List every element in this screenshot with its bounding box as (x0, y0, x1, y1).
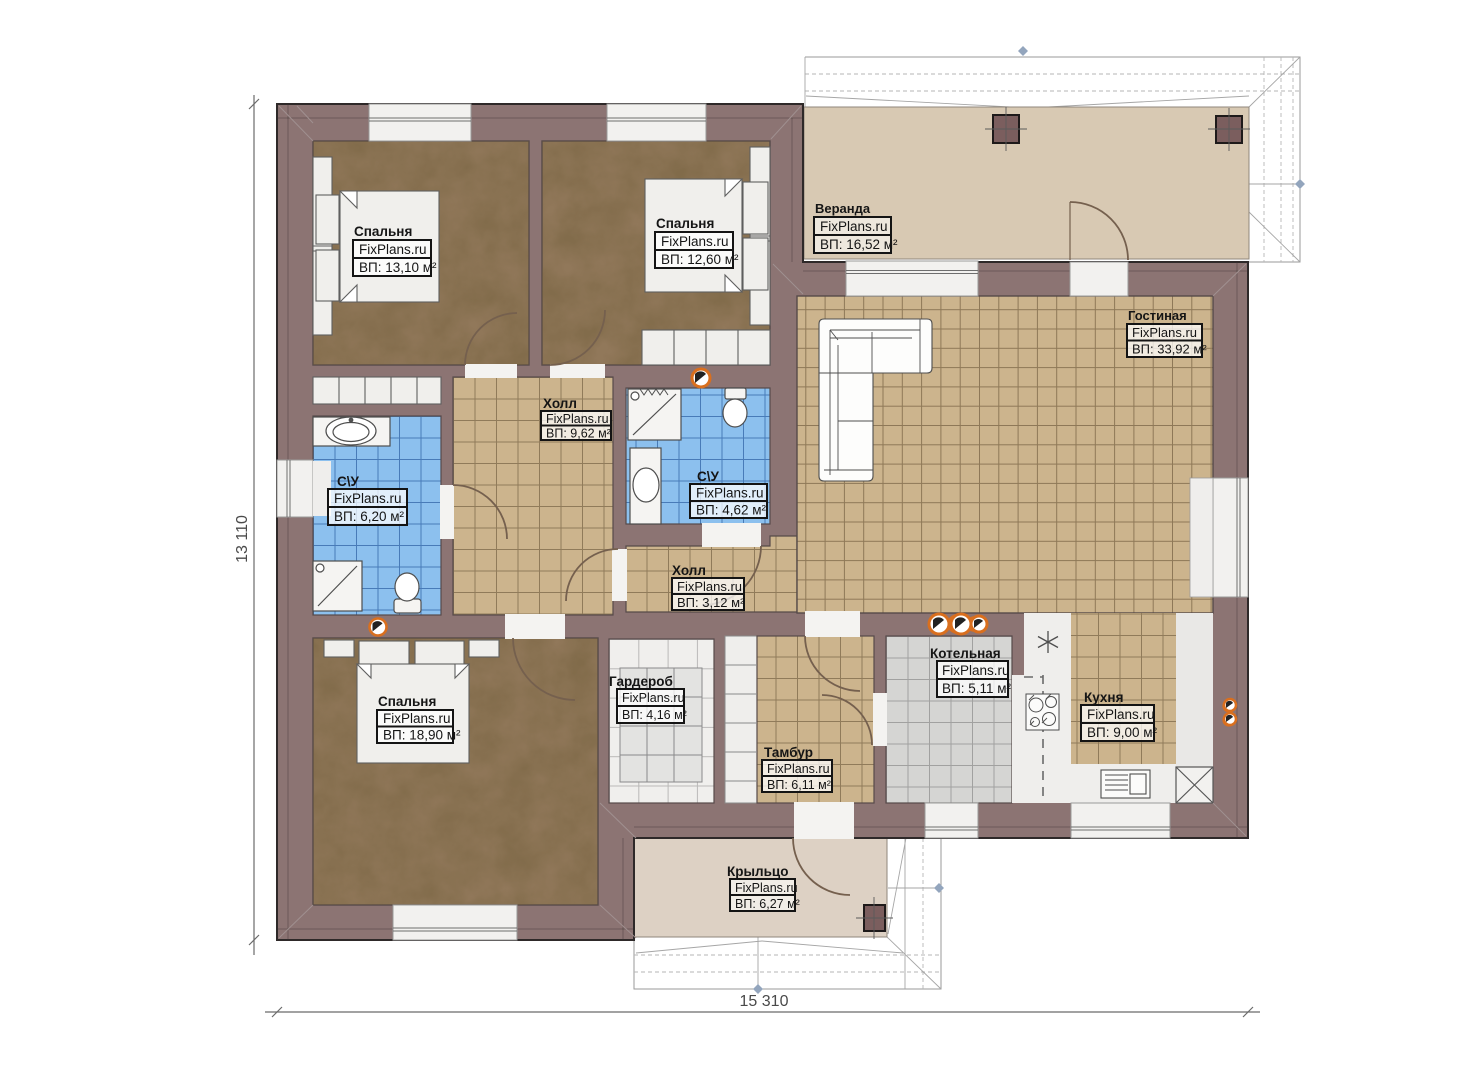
svg-text:ВП: 5,11 м²: ВП: 5,11 м² (942, 681, 1012, 696)
svg-text:Тамбур: Тамбур (764, 745, 813, 760)
svg-text:Холл: Холл (672, 563, 706, 578)
svg-text:ВП: 6,11 м²: ВП: 6,11 м² (767, 778, 831, 792)
svg-text:Спальня: Спальня (354, 224, 412, 239)
svg-text:FixPlans.ru: FixPlans.ru (820, 219, 888, 234)
svg-text:ВП: 4,62 м²: ВП: 4,62 м² (696, 503, 767, 518)
svg-text:FixPlans.ru: FixPlans.ru (735, 881, 798, 895)
svg-text:FixPlans.ru: FixPlans.ru (767, 762, 830, 776)
svg-text:ВП: 9,00 м²: ВП: 9,00 м² (1087, 725, 1158, 740)
svg-text:ВП: 4,16 м²: ВП: 4,16 м² (622, 708, 687, 722)
svg-text:ВП: 18,90 м²: ВП: 18,90 м² (383, 728, 461, 743)
svg-text:FixPlans.ru: FixPlans.ru (677, 579, 742, 594)
svg-text:Крыльцо: Крыльцо (727, 864, 788, 879)
svg-text:FixPlans.ru: FixPlans.ru (696, 486, 764, 501)
svg-text:FixPlans.ru: FixPlans.ru (1087, 707, 1155, 722)
svg-text:FixPlans.ru: FixPlans.ru (942, 663, 1010, 678)
svg-text:С\У: С\У (697, 469, 720, 484)
svg-text:С\У: С\У (337, 474, 360, 489)
svg-text:Кухня: Кухня (1084, 690, 1123, 705)
svg-text:FixPlans.ru: FixPlans.ru (622, 691, 685, 705)
svg-text:Гардероб: Гардероб (609, 674, 673, 689)
svg-text:ВП: 16,52 м²: ВП: 16,52 м² (820, 237, 898, 252)
svg-text:13 110: 13 110 (234, 515, 251, 563)
svg-text:FixPlans.ru: FixPlans.ru (661, 234, 729, 249)
svg-text:Котельная: Котельная (930, 646, 1001, 661)
svg-text:FixPlans.ru: FixPlans.ru (1132, 325, 1197, 340)
svg-text:FixPlans.ru: FixPlans.ru (359, 242, 427, 257)
svg-text:ВП: 6,20 м²: ВП: 6,20 м² (334, 509, 405, 524)
svg-text:FixPlans.ru: FixPlans.ru (546, 412, 609, 426)
svg-text:15 310: 15 310 (740, 993, 789, 1010)
svg-text:Холл: Холл (543, 396, 577, 411)
svg-text:ВП: 3,12 м²: ВП: 3,12 м² (677, 595, 745, 610)
svg-text:ВП: 13,10 м²: ВП: 13,10 м² (359, 260, 437, 275)
svg-text:FixPlans.ru: FixPlans.ru (383, 711, 451, 726)
svg-text:Спальня: Спальня (378, 694, 436, 709)
svg-text:Спальня: Спальня (656, 216, 714, 231)
svg-text:ВП: 9,62 м²: ВП: 9,62 м² (546, 427, 611, 441)
svg-text:ВП: 6,27 м²: ВП: 6,27 м² (735, 897, 800, 911)
svg-text:Гостиная: Гостиная (1128, 308, 1187, 323)
svg-text:FixPlans.ru: FixPlans.ru (334, 491, 402, 506)
svg-text:ВП: 12,60 м²: ВП: 12,60 м² (661, 252, 739, 267)
svg-text:ВП: 33,92 м²: ВП: 33,92 м² (1132, 342, 1207, 357)
svg-text:Веранда: Веранда (815, 201, 871, 216)
